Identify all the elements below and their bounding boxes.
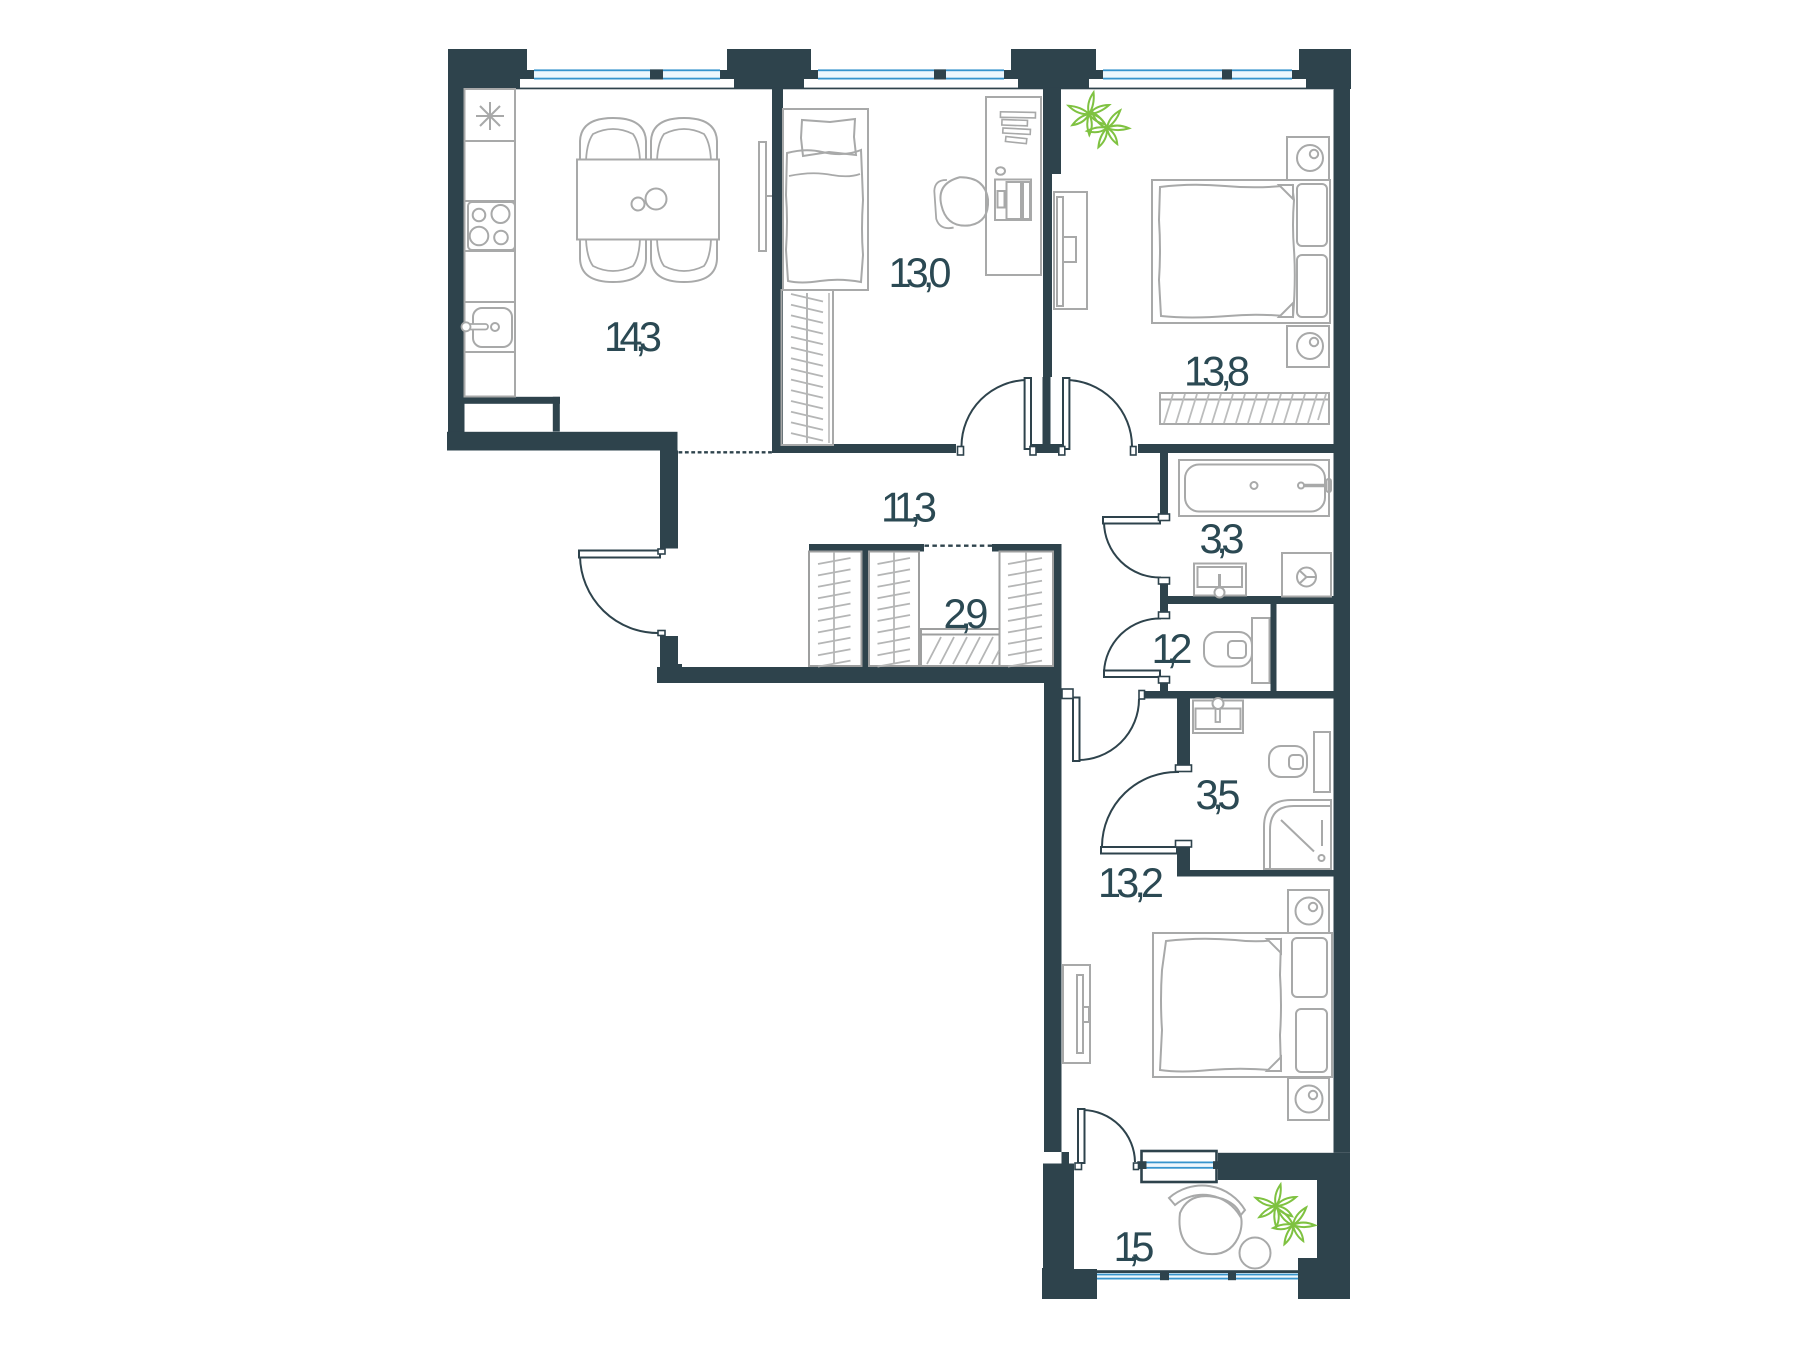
svg-text:14,3: 14,3 <box>604 313 662 360</box>
svg-text:13,2: 13,2 <box>1098 859 1164 906</box>
svg-text:13,0: 13,0 <box>889 249 952 296</box>
svg-text:1,5: 1,5 <box>1114 1223 1155 1270</box>
svg-text:13,8: 13,8 <box>1184 348 1250 395</box>
svg-text:3,5: 3,5 <box>1196 771 1241 818</box>
svg-text:3,3: 3,3 <box>1200 515 1245 562</box>
svg-text:11,3: 11,3 <box>881 484 937 531</box>
svg-text:2,9: 2,9 <box>944 590 989 637</box>
svg-text:1,2: 1,2 <box>1152 625 1193 672</box>
